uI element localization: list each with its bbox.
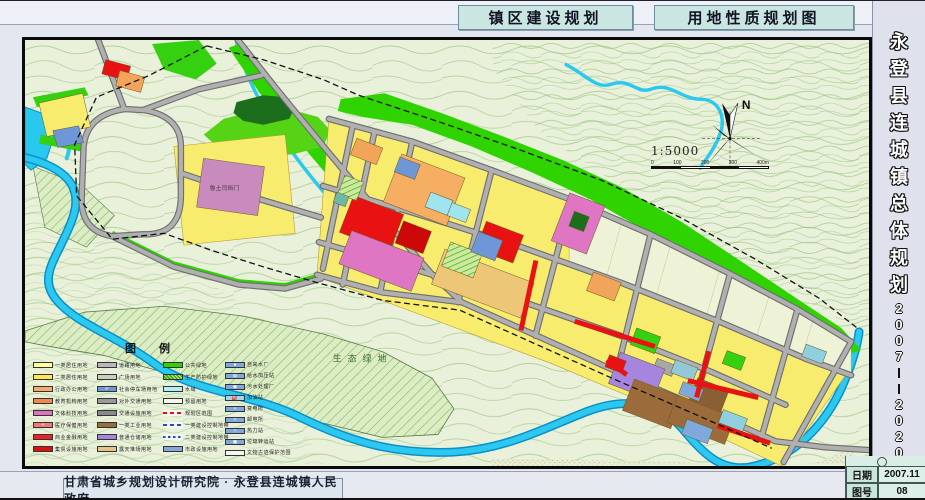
sheet-title-left: 镇区建设规划 bbox=[458, 5, 633, 30]
sheet-title-right: 用地性质规划图 bbox=[654, 5, 854, 30]
legend-item: 交通设施用地 bbox=[97, 407, 163, 419]
legend-swatch bbox=[163, 422, 183, 428]
legend-swatch bbox=[163, 434, 183, 440]
legend-swatch bbox=[97, 422, 117, 428]
legend-label: 热力站 bbox=[247, 427, 264, 434]
legend-swatch bbox=[33, 410, 53, 416]
legend-label: 自来水厂 bbox=[247, 361, 269, 368]
legend-item: 集贸设施用地 bbox=[33, 443, 97, 455]
legend-item: ╱文物古迹保护范围 bbox=[225, 447, 281, 458]
legend-columns: 一类居住用地二类居住用地行政办公用地教育机构用地文体科技用地+医疗保健用地商业金… bbox=[33, 359, 281, 458]
legend-swatch bbox=[33, 374, 53, 380]
legend-item: 公共绿地 bbox=[163, 359, 225, 371]
legend-item: 露天堆场用地 bbox=[97, 443, 163, 455]
sidebar-year-digit: 2 bbox=[895, 397, 902, 413]
legend-col-2: 道路用地广场用地P社会停车场用地对外交通用地交通设施用地一类工业用地普通仓储用地… bbox=[97, 359, 163, 458]
legend-swatch bbox=[97, 362, 117, 368]
legend-col-3: 公共绿地生产防护绿地水域预留用地规划区范围一类建设控制地带二类建设控制地带市政设… bbox=[163, 359, 225, 458]
legend-item: 教育机构用地 bbox=[33, 395, 97, 407]
legend-label: 规划区范围 bbox=[185, 410, 213, 417]
legend-item: 生产防护绿地 bbox=[163, 371, 225, 383]
legend-swatch bbox=[97, 398, 117, 404]
legend-label: 文物古迹保护范围 bbox=[247, 449, 291, 456]
legend-label: 普通仓储用地 bbox=[119, 434, 152, 441]
legend-label: 污水处理厂 bbox=[247, 383, 275, 390]
sidebar-title-char: 连 bbox=[890, 110, 908, 137]
legend-label: 文体科技用地 bbox=[55, 410, 88, 417]
sidebar-title-char: 县 bbox=[890, 83, 908, 110]
scale-bar bbox=[651, 166, 769, 169]
legend-item: ▣垃圾转运站 bbox=[225, 436, 281, 447]
legend-label: 一类工业用地 bbox=[119, 422, 152, 429]
legend-item: 一类居住用地 bbox=[33, 359, 97, 371]
scale-tick: 300 bbox=[729, 160, 737, 166]
sidebar-title-chars: 永登县连城镇总体规划 bbox=[873, 29, 925, 299]
legend-swatch bbox=[163, 386, 183, 392]
legend-col-4: ●自来水厂◍给水加压站◉污水处理厂⛽加油站⚡变电所〒邮电所≈热力站▣垃圾转运站╱… bbox=[225, 359, 281, 458]
heritage-label: 鲁土司衙门 bbox=[210, 184, 240, 192]
legend-item: 广场用地 bbox=[97, 371, 163, 383]
legend-item: 市政设施用地 bbox=[163, 443, 225, 455]
legend-label: 生产防护绿地 bbox=[185, 374, 218, 381]
sidebar-years: 20072020 bbox=[873, 301, 925, 461]
legend-swatch: P bbox=[97, 386, 117, 392]
legend-label: 二类建设控制地带 bbox=[185, 434, 229, 441]
legend-item: +医疗保健用地 bbox=[33, 419, 97, 431]
map-legend: 图 例 一类居住用地二类居住用地行政办公用地教育机构用地文体科技用地+医疗保健用… bbox=[33, 340, 281, 458]
legend-swatch bbox=[33, 362, 53, 368]
legend-swatch: + bbox=[33, 422, 53, 428]
legend-label: 道路用地 bbox=[119, 362, 141, 369]
legend-item: ◍给水加压站 bbox=[225, 370, 281, 381]
legend-label: 变电所 bbox=[247, 405, 264, 412]
legend-col-1: 一类居住用地二类居住用地行政办公用地教育机构用地文体科技用地+医疗保健用地商业金… bbox=[33, 359, 97, 458]
legend-item: 道路用地 bbox=[97, 359, 163, 371]
sheet-value: 08 bbox=[878, 483, 925, 500]
legend-swatch bbox=[97, 446, 117, 452]
sidebar-year-digit: 2 bbox=[895, 429, 902, 445]
legend-item: 规划区范围 bbox=[163, 407, 225, 419]
legend-swatch bbox=[33, 386, 53, 392]
sidebar-title-char: 体 bbox=[890, 218, 908, 245]
legend-label: 二类居住用地 bbox=[55, 374, 88, 381]
legend-label: 垃圾转运站 bbox=[247, 438, 275, 445]
legend-label: 水域 bbox=[185, 386, 196, 393]
scale-block: 1:5000 0100200300400m bbox=[651, 144, 769, 169]
legend-swatch bbox=[33, 434, 53, 440]
sidebar-year-digit: 2 bbox=[895, 301, 902, 317]
legend-swatch: ● bbox=[225, 362, 245, 368]
legend-item: 二类居住用地 bbox=[33, 371, 97, 383]
legend-label: 广场用地 bbox=[119, 374, 141, 381]
scale-tick: 200 bbox=[701, 160, 709, 166]
legend-item: ◉污水处理厂 bbox=[225, 381, 281, 392]
legend-label: 露天堆场用地 bbox=[119, 446, 152, 453]
legend-item: 普通仓储用地 bbox=[97, 431, 163, 443]
sidebar-year-dash bbox=[898, 368, 900, 378]
legend-swatch: ⚡ bbox=[225, 406, 245, 412]
legend-swatch: 〒 bbox=[225, 417, 245, 423]
sidebar-year-digit: 0 bbox=[895, 413, 902, 429]
legend-item: 商业金融用地 bbox=[33, 431, 97, 443]
map-frame[interactable]: N 生态绿地 鲁土司衙门 图 例 一类居住用地二类居住用地行政办公用地教育机构用… bbox=[22, 37, 872, 469]
legend-swatch bbox=[97, 434, 117, 440]
legend-swatch bbox=[97, 410, 117, 416]
sidebar-title-char: 登 bbox=[890, 56, 908, 83]
north-label: N bbox=[742, 98, 751, 112]
legend-label: 医疗保健用地 bbox=[55, 422, 88, 429]
legend-swatch bbox=[163, 398, 183, 404]
credit-box: 甘肃省城乡规划设计研究院 · 永登县连城镇人民政府 bbox=[63, 478, 343, 500]
legend-label: 一类建设控制地带 bbox=[185, 422, 229, 429]
sidebar-title-char: 镇 bbox=[890, 164, 908, 191]
sidebar-title-char: 规 bbox=[890, 245, 908, 272]
legend-item: 预留用地 bbox=[163, 395, 225, 407]
legend-label: 公共绿地 bbox=[185, 362, 207, 369]
scale-tick: 0 bbox=[651, 160, 654, 166]
legend-item: 水域 bbox=[163, 383, 225, 395]
scale-tick: 400m bbox=[756, 160, 769, 166]
date-value: 2007.11 bbox=[878, 466, 925, 483]
sidebar-title-char: 永 bbox=[890, 29, 908, 56]
legend-label: 给水加压站 bbox=[247, 372, 275, 379]
sidebar-title-char: 城 bbox=[890, 137, 908, 164]
scale-tick: 100 bbox=[673, 160, 681, 166]
legend-swatch bbox=[163, 446, 183, 452]
legend-item: 对外交通用地 bbox=[97, 395, 163, 407]
legend-item: ●自来水厂 bbox=[225, 359, 281, 370]
legend-swatch: ▣ bbox=[225, 439, 245, 445]
legend-label: 商业金融用地 bbox=[55, 434, 88, 441]
legend-swatch: ◉ bbox=[225, 384, 245, 390]
legend-title: 图 例 bbox=[125, 340, 281, 356]
legend-label: 对外交通用地 bbox=[119, 398, 152, 405]
sidebar-year-digit: 0 bbox=[895, 333, 902, 349]
legend-label: 集贸设施用地 bbox=[55, 446, 88, 453]
title-block: 日期 2007.11 图号 08 bbox=[845, 456, 925, 500]
sidebar-title-char: 总 bbox=[890, 191, 908, 218]
legend-label: 市政设施用地 bbox=[185, 446, 218, 453]
legend-item: 行政办公用地 bbox=[33, 383, 97, 395]
legend-swatch: ╱ bbox=[225, 450, 245, 456]
eco-green-label: 生态绿地 bbox=[333, 353, 393, 364]
date-sheet-table: 日期 2007.11 图号 08 bbox=[846, 466, 925, 500]
plan-sheet: 镇区建设规划 用地性质规划图 bbox=[0, 0, 925, 500]
legend-item: 一类建设控制地带 bbox=[163, 419, 225, 431]
sidebar-year-digit: 0 bbox=[895, 317, 902, 333]
sheet-label: 图号 bbox=[846, 483, 878, 500]
legend-label: 预留用地 bbox=[185, 398, 207, 405]
legend-label: 社会停车场用地 bbox=[119, 386, 158, 393]
legend-swatch bbox=[163, 410, 183, 416]
legend-swatch bbox=[163, 374, 183, 380]
legend-label: 一类居住用地 bbox=[55, 362, 88, 369]
legend-item: ≈热力站 bbox=[225, 425, 281, 436]
legend-swatch: ◍ bbox=[225, 373, 245, 379]
date-label: 日期 bbox=[846, 466, 878, 483]
legend-swatch bbox=[33, 398, 53, 404]
legend-swatch bbox=[97, 374, 117, 380]
legend-item: 〒邮电所 bbox=[225, 414, 281, 425]
legend-label: 加油站 bbox=[247, 394, 264, 401]
sidebar-title-char: 划 bbox=[890, 272, 908, 299]
legend-item: 一类工业用地 bbox=[97, 419, 163, 431]
legend-swatch: ≈ bbox=[225, 428, 245, 434]
legend-item: 二类建设控制地带 bbox=[163, 431, 225, 443]
sidebar: 永登县连城镇总体规划 20072020 bbox=[872, 1, 925, 463]
legend-label: 交通设施用地 bbox=[119, 410, 152, 417]
legend-item: 文体科技用地 bbox=[33, 407, 97, 419]
legend-label: 教育机构用地 bbox=[55, 398, 88, 405]
scale-ratio: 1:5000 bbox=[651, 144, 769, 158]
legend-item: ⛽加油站 bbox=[225, 392, 281, 403]
legend-swatch bbox=[163, 362, 183, 368]
sidebar-year-digit: 7 bbox=[895, 349, 902, 365]
sidebar-year-dash bbox=[898, 384, 900, 394]
legend-swatch bbox=[33, 446, 53, 452]
legend-label: 邮电所 bbox=[247, 416, 264, 423]
legend-item: ⚡变电所 bbox=[225, 403, 281, 414]
legend-item: P社会停车场用地 bbox=[97, 383, 163, 395]
legend-label: 行政办公用地 bbox=[55, 386, 88, 393]
legend-swatch: ⛽ bbox=[225, 395, 245, 401]
